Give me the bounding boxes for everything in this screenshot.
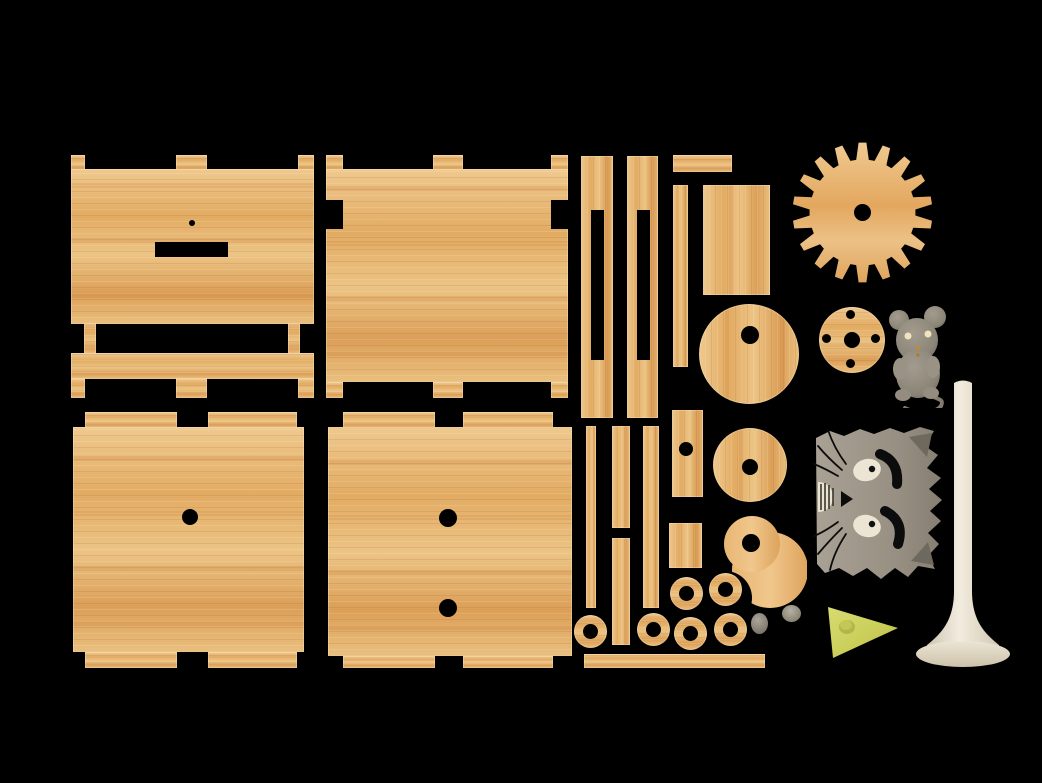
panel-tab [208,412,297,428]
thin-strut [673,185,688,367]
kit-flatlay-scene [0,0,1042,783]
flange-hole [822,334,831,343]
pedestal-pole [927,381,999,652]
panel-tab [85,652,177,668]
panel-tab [326,382,343,398]
panel-tab [176,378,207,398]
panel-body [328,427,572,656]
axle-hole [439,599,457,617]
panel-tab [71,378,85,398]
panel-tab [433,382,463,398]
back-panel [326,155,568,398]
small-square-plate [669,523,702,568]
front-panel [71,155,314,398]
plain-strut [643,426,659,608]
plain-strut [612,538,630,645]
panel-tab [298,378,314,398]
mouse-eye [905,333,912,340]
cat-pupil [869,521,875,527]
flange-hole [871,334,880,343]
panel-tab [463,412,553,428]
mouse-arm [893,358,907,380]
thin-strut [586,426,596,608]
panel-tab [208,652,297,668]
mouse-foot [895,389,911,401]
panel-tab [551,382,568,398]
panel-body [326,169,568,382]
disc-hole [742,459,758,475]
panel-tab [85,412,177,428]
gear-center-hole [854,204,871,221]
washer [637,613,670,646]
edge-notch [326,200,343,229]
medium-disc-center-hole [713,428,787,502]
panel-upright [288,323,300,354]
edge-notch [551,200,568,229]
washer [714,613,747,646]
panel-tab [343,412,435,428]
pebble [751,613,768,634]
cam-hole [742,534,760,552]
gear-wheel [790,140,935,285]
flange-disc-5-holes [819,307,885,373]
pedestal-base [916,641,1010,667]
small-plate-with-hole [672,410,703,497]
small-plate [703,185,770,295]
side-panel-one-hole [73,412,304,668]
axle-hole [439,509,457,527]
flange-center-hole [844,332,860,348]
mouse-eye [925,331,932,338]
panel-body [73,427,304,652]
flange-hole [846,310,855,319]
panel-rail [71,353,314,379]
plain-strut [612,426,630,528]
axle-hole [182,509,198,525]
panel-upright [84,323,96,354]
panel-tab [343,656,435,668]
washer [674,617,707,650]
slotted-strut [627,156,658,418]
mouse-mouth [916,353,919,356]
cat-pupil [869,466,875,472]
mouse-nose [916,346,920,350]
side-panel-two-holes [328,412,572,668]
washer [709,573,742,606]
rect-slot [155,242,228,257]
slotted-strut [581,156,613,418]
strut-slot [637,210,650,360]
washer [574,615,607,648]
pin-hole [189,220,195,226]
flange-hole [846,359,855,368]
strut-slot [591,210,604,360]
panel-tab [463,656,553,668]
washer [670,577,703,610]
pedestal-stand [915,373,1025,673]
short-bar [673,155,732,172]
plate-hole [679,442,693,456]
long-thin-rail [584,654,765,668]
pebble [782,605,801,622]
disc-hole [741,326,759,344]
large-disc-offset-hole [699,304,799,404]
cheese-wedge [822,598,904,663]
